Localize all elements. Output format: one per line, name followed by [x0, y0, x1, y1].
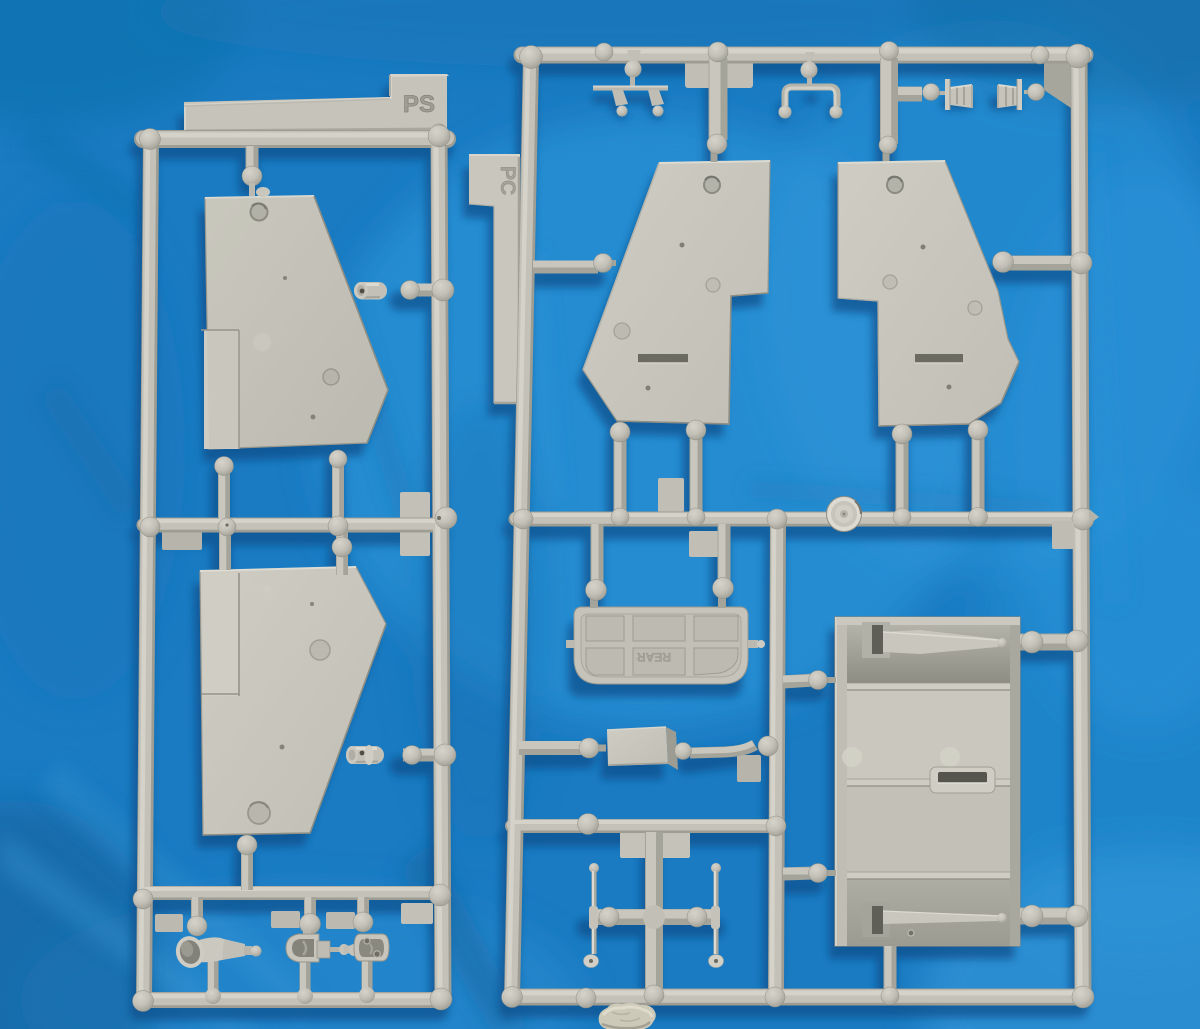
svg-text:PC: PC — [496, 166, 519, 195]
svg-text:PS: PS — [403, 91, 435, 118]
svg-text:REAR: REAR — [637, 650, 671, 664]
